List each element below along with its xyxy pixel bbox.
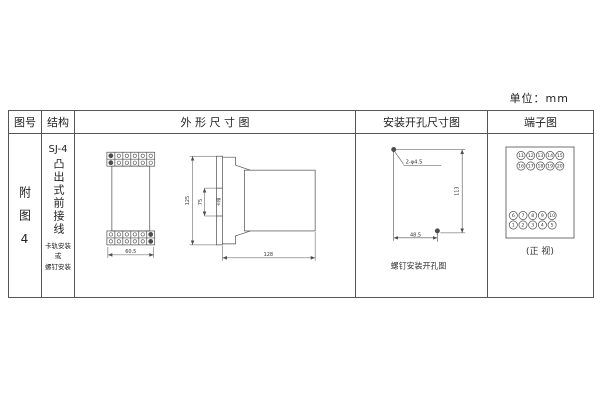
- side-body: [244, 170, 315, 231]
- screw-terminal: [125, 240, 128, 243]
- screw-terminal: [117, 233, 120, 236]
- side-view-group: [190, 156, 316, 261]
- horizontal-dim-label: 48.5: [410, 232, 421, 238]
- screw-terminal: [141, 154, 144, 157]
- side-depth-dim-label: 128: [264, 252, 273, 258]
- header-structure: 结构: [42, 111, 75, 134]
- mount-note-line: 卡轨安装: [45, 241, 71, 251]
- side-tabs: [222, 157, 235, 244]
- slot-label: 卡槽: [215, 198, 221, 206]
- slot-ext-lines: [205, 188, 217, 216]
- screw-terminal: [133, 161, 136, 164]
- front-view-group: [107, 152, 155, 258]
- hole-size-label: 2-φ4.5: [406, 159, 423, 165]
- structure-cell: SJ-4 凸出式前接线 卡轨安装 或 螺钉安装: [42, 134, 75, 297]
- screw-terminal: [109, 161, 113, 165]
- terminal-number: 16: [518, 164, 524, 170]
- terminal-number: 7: [522, 213, 525, 219]
- terminal-number: 12: [528, 153, 534, 159]
- model-label: SJ-4: [49, 144, 68, 155]
- structure-type-text: 凸出式前接线: [50, 158, 66, 236]
- terminal-number: 13: [537, 153, 543, 159]
- front-bottom-block-grid: [107, 231, 155, 245]
- screw-terminal: [109, 154, 113, 158]
- mount-hole-bottom-right: [435, 229, 439, 233]
- terminal-number: 2: [522, 223, 525, 229]
- screw-terminal: [109, 240, 112, 243]
- screw-terminal: [149, 232, 153, 236]
- vertical-dim-label: 113: [455, 186, 461, 195]
- header-mounting: 安装开孔尺寸图: [356, 111, 488, 134]
- header-terminal: 端子图: [488, 111, 593, 134]
- terminal-number: 10: [549, 213, 555, 219]
- mount-note-line: 螺钉安装: [45, 262, 71, 272]
- spec-table: 图号 结构 外 形 尺 寸 图 安装开孔尺寸图 端子图 附图4 SJ-4 凸出式…: [8, 110, 594, 298]
- front-top-block-grid: [107, 152, 155, 166]
- terminal-number: 4: [541, 223, 544, 229]
- mount-note-line: 或: [45, 251, 71, 261]
- terminal-number: 8: [531, 213, 534, 219]
- mounting-drawing-svg: 2-φ4.5 113 48.5 螺钉安装开孔图: [356, 134, 487, 297]
- terminal-number: 14: [547, 153, 553, 159]
- screw-terminal: [141, 240, 144, 243]
- terminal-circle-grid: 1112131415161718192067891012345: [509, 151, 564, 229]
- screw-terminal: [125, 233, 128, 236]
- screw-terminal: [133, 240, 136, 243]
- header-fig-no: 图号: [9, 111, 42, 134]
- outline-drawing-cell: 60.5 125: [75, 134, 356, 297]
- front-terminal-screws: [109, 154, 153, 244]
- fig-no-cell: 附图4: [9, 134, 42, 297]
- screw-terminal: [149, 239, 153, 243]
- terminal-number: 17: [528, 164, 534, 170]
- header-outline: 外 形 尺 寸 图: [75, 111, 356, 134]
- screw-terminal: [125, 154, 128, 157]
- terminal-number: 6: [512, 213, 515, 219]
- screw-terminal: [133, 154, 136, 157]
- front-body: [112, 166, 150, 231]
- screw-terminal: [149, 161, 152, 164]
- front-width-dim-label: 60.5: [125, 249, 136, 255]
- screw-terminal: [125, 161, 128, 164]
- terminal-number: 18: [537, 164, 543, 170]
- screw-terminal: [117, 154, 120, 157]
- screw-terminal: [117, 240, 120, 243]
- terminal-number: 19: [547, 164, 553, 170]
- terminal-caption: (正 视): [526, 245, 554, 257]
- screw-terminal: [149, 154, 152, 157]
- terminal-number: 20: [557, 164, 563, 170]
- datasheet-page: 单位：mm 图号 结构 外 形 尺 寸 图 安装开孔尺寸图 端子图 附图4 SJ…: [0, 0, 600, 400]
- outline-drawing-svg: 60.5 125: [75, 134, 355, 297]
- screw-terminal: [141, 161, 144, 164]
- terminal-number: 9: [541, 213, 544, 219]
- mount-hole-top-left: [392, 147, 396, 151]
- terminal-diagram-cell: 1112131415161718192067891012345 (正 视): [488, 134, 593, 297]
- screw-terminal: [133, 233, 136, 236]
- terminal-number: 11: [518, 153, 524, 159]
- terminal-number: 15: [557, 153, 563, 159]
- unit-label: 单位：mm: [510, 90, 569, 106]
- screw-terminal: [109, 233, 112, 236]
- fig-no-text: 附图4: [17, 175, 34, 257]
- screw-terminal: [117, 161, 120, 164]
- side-tab-diagonals: [235, 165, 250, 236]
- terminal-number: 3: [531, 223, 534, 229]
- mounting-caption: 螺钉安装开孔图: [391, 261, 447, 271]
- screw-terminal: [141, 233, 144, 236]
- slot-dim-label: 75: [198, 199, 204, 205]
- mount-note: 卡轨安装 或 螺钉安装: [45, 241, 71, 272]
- terminal-number: 5: [551, 223, 554, 229]
- terminal-number: 1: [512, 223, 515, 229]
- side-height-dim-label: 125: [185, 196, 191, 205]
- mounting-drawing-cell: 2-φ4.5 113 48.5 螺钉安装开孔图: [356, 134, 488, 297]
- terminal-diagram-svg: 1112131415161718192067891012345 (正 视): [488, 134, 593, 297]
